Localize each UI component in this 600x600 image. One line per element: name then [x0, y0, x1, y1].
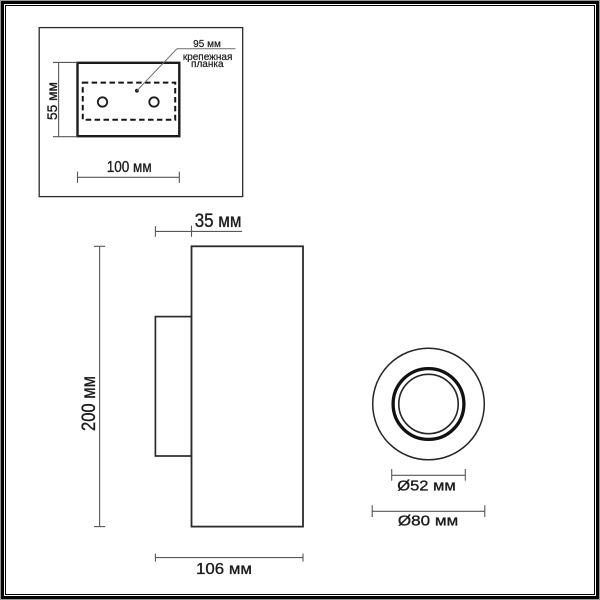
svg-text:Ø52 мм: Ø52 мм — [397, 478, 456, 495]
svg-text:100 мм: 100 мм — [107, 159, 152, 176]
svg-text:Ø80 мм: Ø80 мм — [398, 513, 458, 530]
svg-text:55 мм: 55 мм — [44, 82, 60, 120]
svg-text:106 мм: 106 мм — [196, 561, 252, 578]
svg-text:планка: планка — [191, 59, 224, 70]
svg-text:35 мм: 35 мм — [195, 211, 242, 232]
svg-text:200 мм: 200 мм — [79, 376, 100, 431]
svg-text:95 мм: 95 мм — [193, 39, 221, 50]
